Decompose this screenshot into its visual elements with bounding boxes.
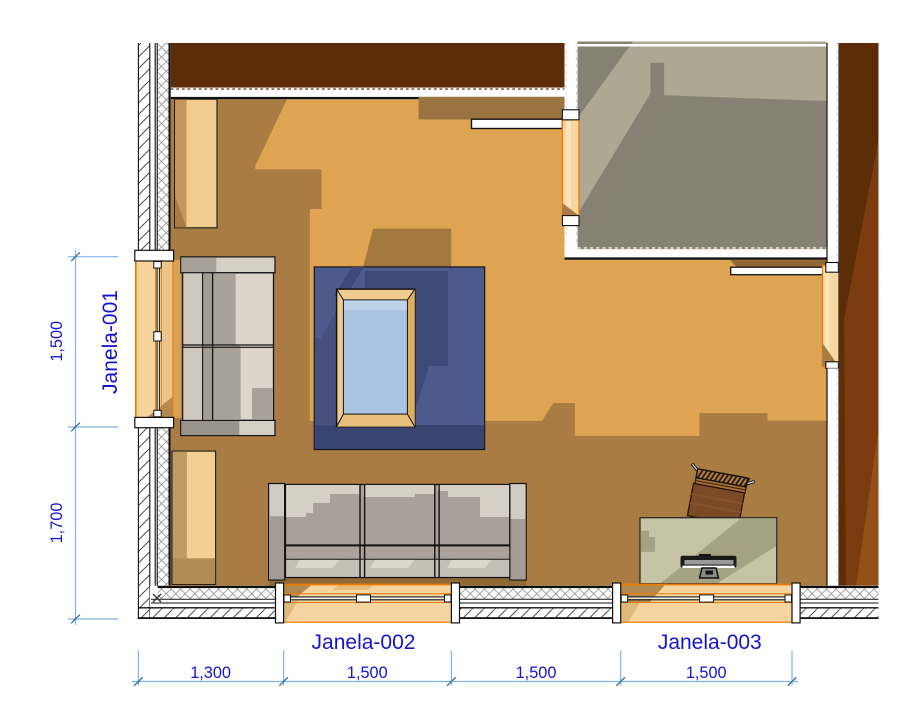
svg-text:1,700: 1,700	[48, 503, 66, 544]
svg-text:Janela-001: Janela-001	[99, 290, 122, 394]
svg-text:1,500: 1,500	[686, 664, 727, 682]
svg-text:1,500: 1,500	[516, 664, 557, 682]
svg-text:1,300: 1,300	[190, 664, 231, 682]
svg-text:Janela-003: Janela-003	[658, 631, 762, 654]
svg-text:Janela-002: Janela-002	[312, 631, 416, 654]
svg-text:1,500: 1,500	[347, 664, 388, 682]
svg-text:1,500: 1,500	[48, 321, 66, 362]
